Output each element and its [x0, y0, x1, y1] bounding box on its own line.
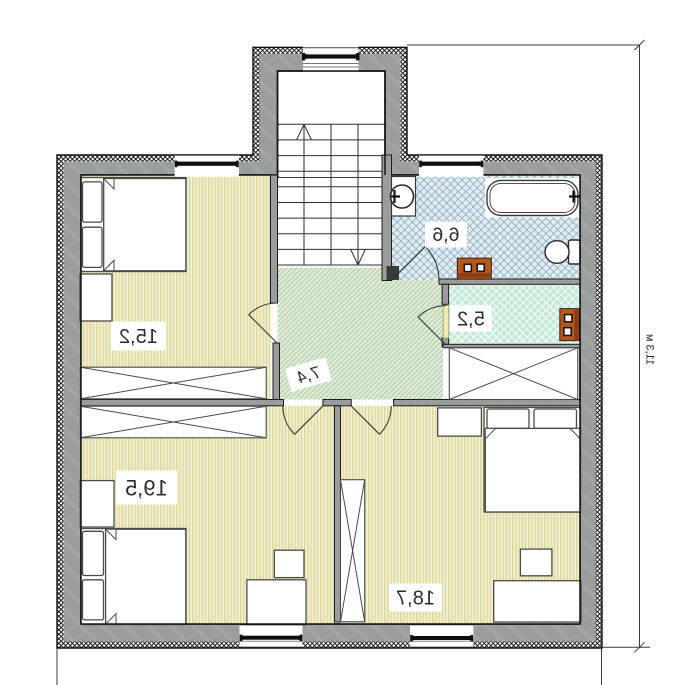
svg-text:6,6: 6,6	[432, 224, 459, 246]
svg-text:11,3 м: 11,3 м	[644, 334, 656, 365]
svg-text:5,2: 5,2	[457, 309, 485, 331]
svg-text:18,7: 18,7	[396, 588, 435, 610]
svg-text:15,2: 15,2	[119, 326, 158, 348]
svg-text:19,5: 19,5	[125, 476, 168, 501]
